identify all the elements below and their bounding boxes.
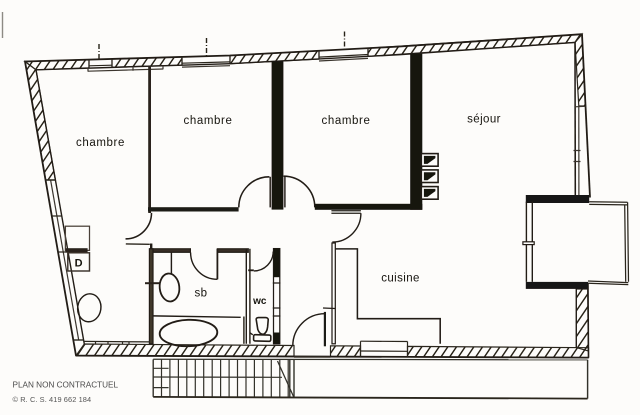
- svg-text:chambre: chambre: [184, 115, 233, 127]
- svg-text:sb: sb: [195, 288, 208, 300]
- svg-text:wc: wc: [252, 296, 267, 307]
- svg-text:PLAN NON CONTRACTUEL: PLAN NON CONTRACTUEL: [13, 381, 119, 390]
- svg-text:© R. C. S. 419 662 184: © R. C. S. 419 662 184: [13, 395, 92, 404]
- svg-text:séjour: séjour: [467, 114, 501, 126]
- svg-text:D: D: [75, 258, 83, 270]
- svg-text:cuisine: cuisine: [381, 273, 420, 285]
- svg-text:chambre: chambre: [322, 115, 371, 127]
- svg-text:chambre: chambre: [76, 137, 125, 149]
